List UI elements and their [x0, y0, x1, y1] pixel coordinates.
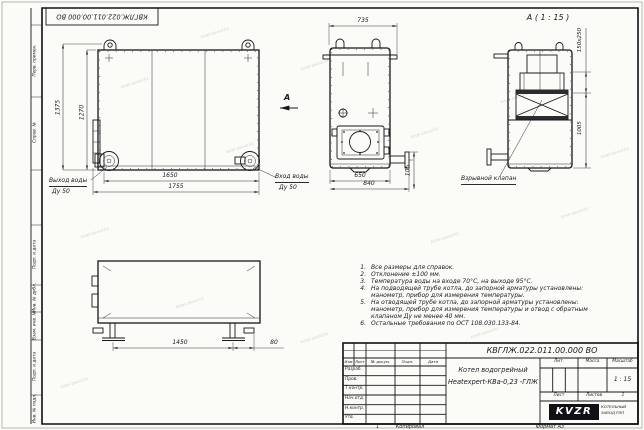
notes-list: 1.Все размеры для справок. 2.Отклонение …	[352, 264, 604, 327]
titleblock-mass-label: Масса	[578, 360, 607, 365]
titleblock-col-izm: Изм	[343, 360, 354, 364]
kvzr-logo: KVZR	[549, 404, 599, 420]
note-number: 2.	[352, 271, 371, 278]
titleblock-sheets-value: 1	[612, 394, 634, 399]
detail-view-title: А ( 1 : 15 )	[516, 13, 580, 22]
titleblock-row-nkontr: Н.контр.	[345, 407, 364, 412]
titleblock-scale-value: 1 : 15	[607, 377, 638, 384]
titleblock-sheets-label: Листов	[580, 394, 608, 399]
front-outlet-dn: Ду 50	[52, 189, 70, 196]
logo-subtitle-line1: КОТЕЛЬНЫЙ	[601, 405, 626, 409]
note-number: 3.	[352, 278, 371, 285]
titleblock-row-razrab: Разраб.	[345, 368, 362, 373]
note-text: На отводящей трубе котла, до запорной ар…	[371, 299, 604, 320]
note-item: 5.На отводящей трубе котла, до запорной …	[352, 299, 604, 320]
logo-subtitle-line2: ЗАВОД РЭП	[601, 411, 624, 415]
drawing-sheet: kotel-zavod.kz kotel-zavod.kz kotel-zavo…	[0, 0, 644, 430]
titleblock-product-name-line2: Heatexpert-КВа-0,23 -ГЛЖ	[446, 379, 540, 387]
front-dim-height-inner: 1270	[80, 97, 87, 127]
note-text: Все размеры для справок.	[371, 264, 604, 271]
detail-dim-height: 1005	[577, 113, 583, 143]
titleblock-col-doc: № докум.	[366, 360, 395, 364]
margin-label-inv-podl: Инв. № подл.	[34, 378, 39, 430]
titleblock-doc-number: КВГЛЖ.022.011.00.000 ВО	[446, 346, 638, 355]
note-text: Температура воды на входе 70°С, на выход…	[371, 278, 604, 285]
note-item: 4.На подводящей трубе котла, до запорной…	[352, 285, 604, 299]
titleblock-row-utv: Утв.	[345, 416, 354, 421]
side-dim-width-top: 735	[340, 18, 386, 25]
footer-page-mark: 1	[376, 425, 379, 430]
margin-label-perv-primen: Перв. примен.	[34, 30, 39, 90]
side-dim-pipe-height: 105	[406, 155, 413, 185]
top-view-linework	[92, 261, 284, 351]
footer-format: Формат А3	[528, 425, 572, 430]
titleblock-product-name-line1: Котел водогрейный	[446, 367, 540, 375]
side-dim-width-inner: 650	[337, 173, 383, 180]
top-stamp-doc-number: КВГЛЖ.022.011.00.000 ВО	[48, 12, 156, 20]
detail-dim-outlet: 150x250	[577, 25, 583, 55]
front-inlet-label: Вход воды	[275, 174, 309, 183]
note-number: 5.	[352, 299, 371, 320]
titleblock-row-prov: Пров.	[345, 378, 358, 383]
margin-label-sprav-no: Справ. №	[34, 102, 39, 162]
titleblock-col-podp: Подп.	[395, 360, 420, 364]
titleblock-row-tkontr: Т.контр.	[345, 387, 364, 392]
note-number: 1.	[352, 264, 371, 271]
titleblock-row-nachotd: Нач.отд.	[345, 397, 364, 402]
footer-kopiroval: Копировал	[388, 425, 432, 430]
detail-valve-label: Взрывной клапан	[461, 176, 516, 185]
front-view-linework	[63, 40, 298, 195]
note-number: 6.	[352, 320, 371, 327]
titleblock-col-data: Дата	[420, 360, 446, 364]
front-dim-width-outer: 1755	[151, 184, 201, 191]
note-item: 3.Температура воды на входе 70°С, на вых…	[352, 278, 604, 285]
note-number: 4.	[352, 285, 371, 299]
side-dim-width-outer: 840	[346, 181, 392, 188]
titleblock-scale-label: Масштаб	[607, 360, 638, 365]
note-text: Остальные требования по ОСТ 108.030.133-…	[371, 320, 604, 327]
front-inlet-dn: Ду 50	[279, 185, 297, 192]
titleblock-col-list: Лист	[354, 360, 366, 364]
titleblock-lit-label: Лит.	[540, 360, 578, 365]
top-dim-width: 1450	[152, 340, 208, 347]
titleblock-sheet-label: Лист	[540, 394, 578, 399]
note-item: 1.Все размеры для справок.	[352, 264, 604, 271]
front-dim-width-inner: 1650	[145, 173, 195, 180]
note-text: На подводящей трубе котла, до запорной а…	[371, 285, 604, 299]
note-item: 6.Остальные требования по ОСТ 108.030.13…	[352, 320, 604, 327]
top-dim-offset: 80	[262, 340, 286, 347]
front-section-mark: А	[284, 93, 290, 102]
note-item: 2.Отклонение ±100 мм.	[352, 271, 604, 278]
detail-view-linework	[487, 28, 591, 176]
note-text: Отклонение ±100 мм.	[371, 271, 604, 278]
front-outlet-label: Выход воды	[49, 178, 87, 187]
drawing-linework	[0, 0, 644, 430]
front-dim-height-outer: 1375	[56, 92, 63, 122]
